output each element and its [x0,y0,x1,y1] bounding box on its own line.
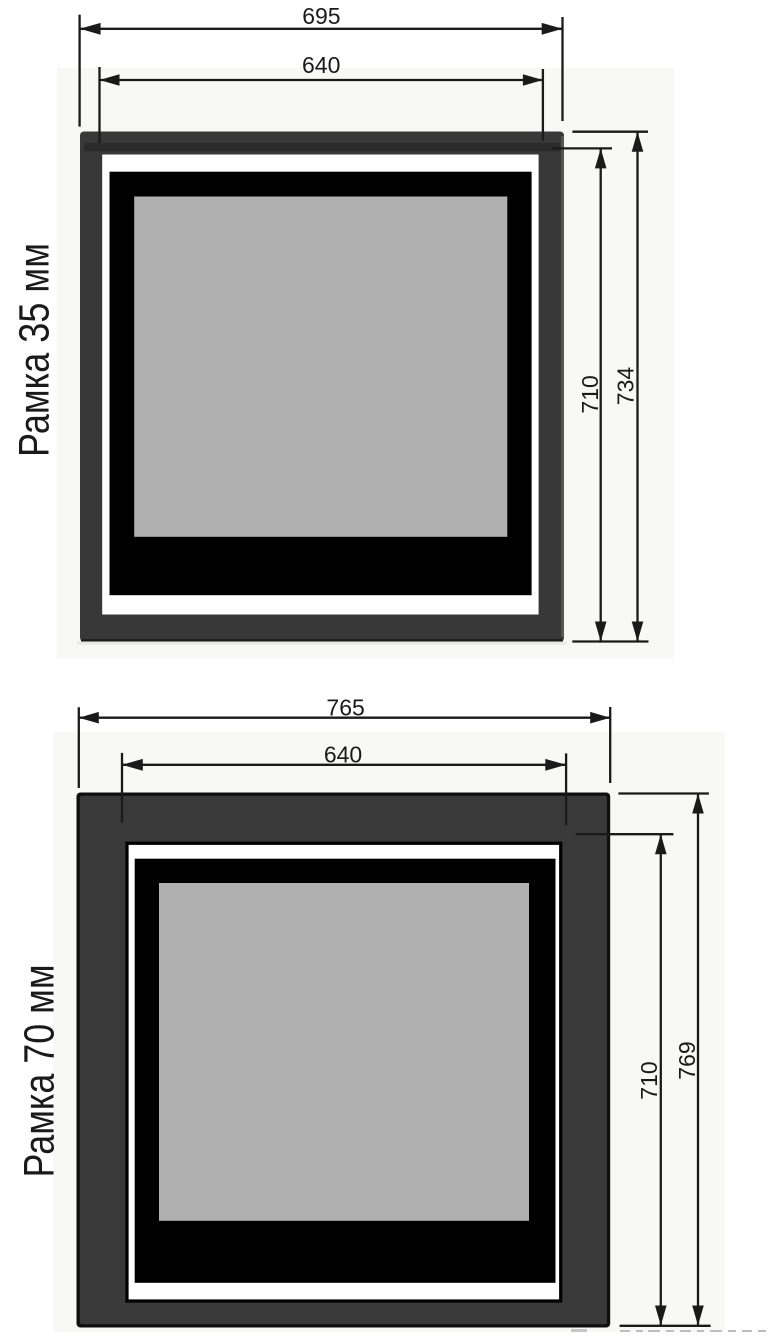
svg-text:769: 769 [674,1041,700,1079]
svg-text:710: 710 [577,375,603,413]
svg-text:640: 640 [302,52,340,78]
svg-text:734: 734 [613,367,639,406]
svg-text:Рамка 35 мм: Рамка 35 мм [12,243,59,457]
svg-text:710: 710 [636,1061,662,1099]
svg-text:Рамка 70 мм: Рамка 70 мм [17,965,64,1178]
svg-text:640: 640 [324,741,362,767]
svg-text:765: 765 [326,694,364,720]
svg-text:695: 695 [302,3,340,29]
